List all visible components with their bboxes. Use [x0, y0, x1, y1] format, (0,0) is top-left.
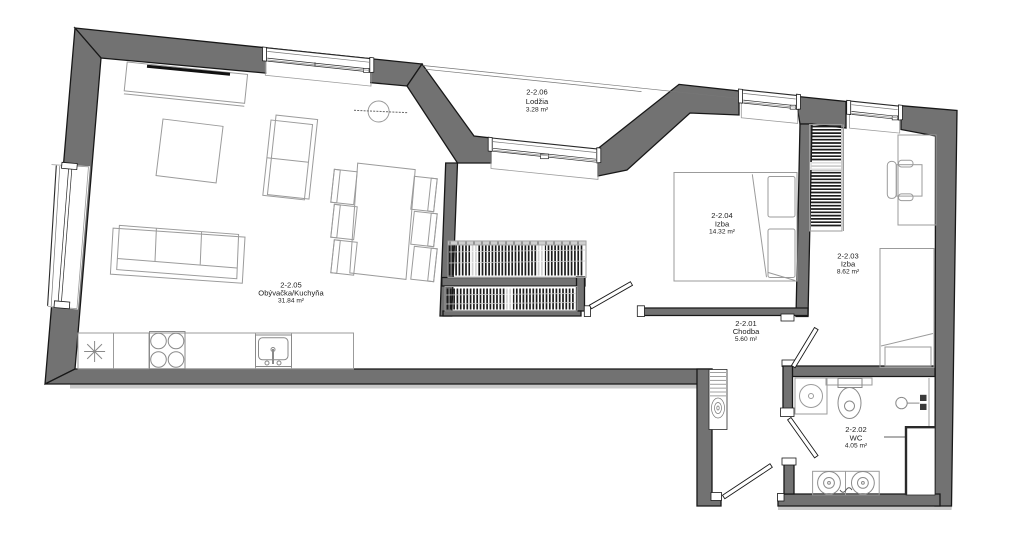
svg-text:31.84 m²: 31.84 m²: [278, 297, 305, 304]
svg-text:14.32 m²: 14.32 m²: [709, 229, 736, 236]
svg-text:3.28 m²: 3.28 m²: [526, 106, 549, 113]
svg-text:Izba: Izba: [841, 260, 856, 269]
svg-text:8.62 m²: 8.62 m²: [837, 269, 860, 276]
svg-text:2-2.06: 2-2.06: [526, 88, 548, 97]
svg-text:5.60 m²: 5.60 m²: [735, 336, 758, 343]
svg-text:Lodžia: Lodžia: [526, 97, 549, 106]
svg-text:Obývačka/Kuchyňa: Obývačka/Kuchyňa: [258, 289, 324, 298]
svg-text:Izba: Izba: [715, 219, 730, 228]
svg-text:WC: WC: [850, 433, 863, 442]
svg-text:Chodba: Chodba: [733, 327, 760, 336]
svg-text:4.05 m²: 4.05 m²: [845, 443, 868, 450]
